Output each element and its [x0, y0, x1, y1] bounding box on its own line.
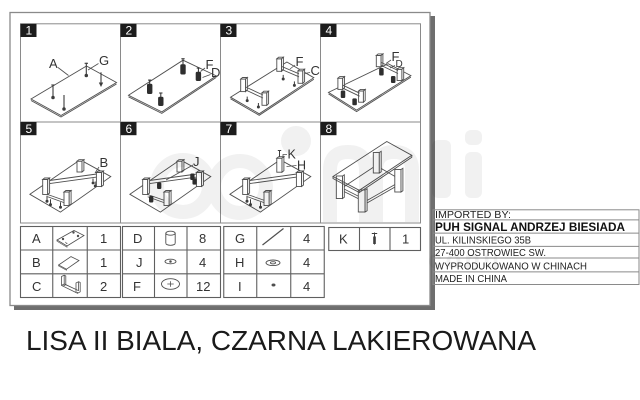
svg-text:1: 1 [26, 24, 33, 38]
svg-text:PUH SIGNAL ANDRZEJ BIESIADA: PUH SIGNAL ANDRZEJ BIESIADA [435, 220, 625, 234]
svg-text:D: D [396, 59, 403, 70]
svg-text:F: F [133, 279, 141, 294]
svg-text:H: H [235, 255, 244, 270]
svg-text:C: C [32, 279, 41, 294]
svg-text:C: C [311, 63, 320, 78]
svg-text:2: 2 [100, 279, 107, 294]
svg-text:LISA II BIALA, CZARNA LAKIEROW: LISA II BIALA, CZARNA LAKIEROWANA [26, 324, 536, 356]
svg-text:1: 1 [402, 232, 409, 247]
svg-text:I: I [238, 279, 242, 294]
svg-text:D: D [133, 231, 142, 246]
svg-text:5: 5 [26, 122, 33, 136]
svg-text:3: 3 [226, 24, 233, 38]
svg-text:8: 8 [199, 231, 206, 246]
svg-text:12: 12 [196, 279, 210, 294]
svg-text:A: A [49, 56, 58, 71]
svg-text:2: 2 [126, 24, 133, 38]
svg-text:8: 8 [326, 122, 333, 136]
svg-text:F: F [296, 54, 304, 69]
svg-text:D: D [211, 65, 220, 80]
svg-text:7: 7 [226, 122, 233, 136]
svg-text:4: 4 [303, 255, 310, 270]
svg-text:G: G [235, 231, 245, 246]
svg-text:4: 4 [199, 255, 206, 270]
svg-text:B: B [100, 155, 109, 170]
svg-text:conu: conu [428, 244, 502, 274]
svg-text:J: J [136, 255, 143, 270]
svg-text:B: B [32, 255, 41, 270]
svg-text:A: A [32, 231, 41, 246]
svg-text:G: G [99, 53, 109, 68]
svg-text:6: 6 [126, 122, 133, 136]
svg-text:K: K [339, 232, 348, 247]
svg-text:1: 1 [100, 231, 107, 246]
svg-text:4: 4 [303, 231, 310, 246]
svg-text:4: 4 [303, 279, 310, 294]
svg-text:1: 1 [100, 255, 107, 270]
svg-text:H: H [297, 159, 306, 173]
svg-text:MADE IN CHINA: MADE IN CHINA [435, 273, 507, 285]
svg-text:4: 4 [326, 24, 333, 38]
